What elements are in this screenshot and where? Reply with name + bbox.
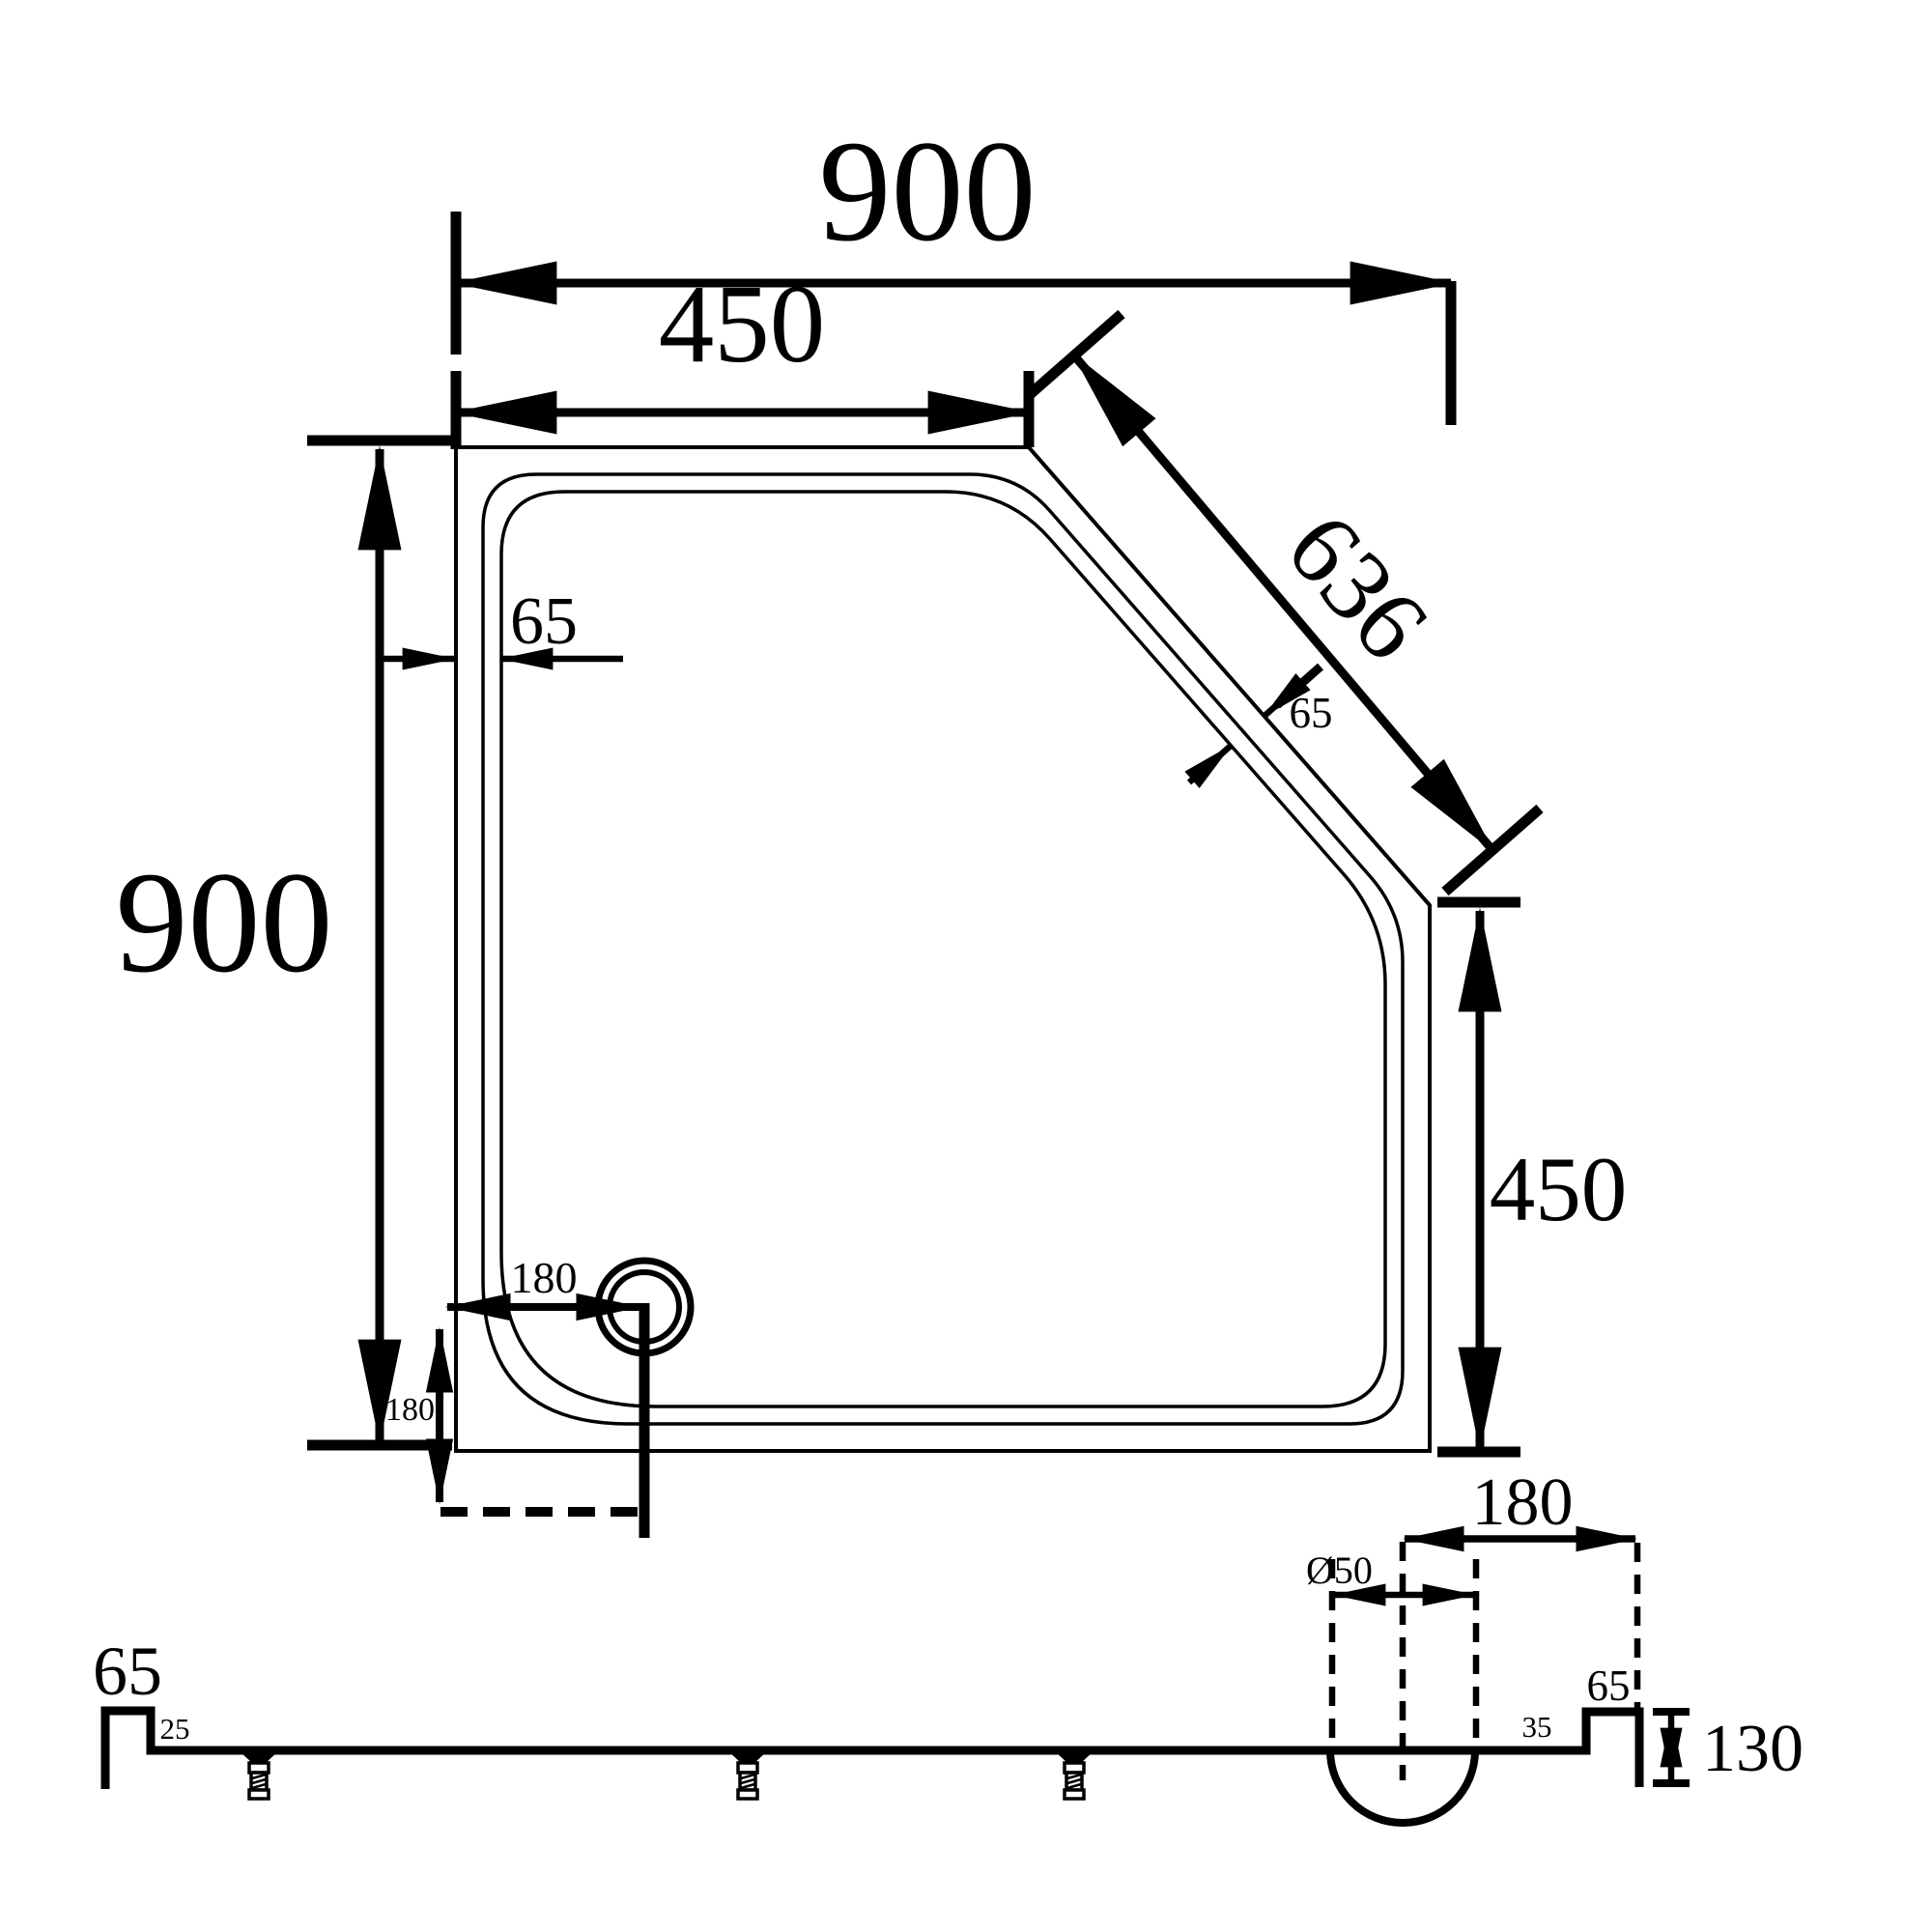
dim-label-left-upstand-width: 65: [93, 1633, 162, 1710]
tray-rim-inner-line-2: [501, 492, 1385, 1406]
adjustable-foot: [240, 1751, 278, 1799]
dim-label-overall-height: 130: [1702, 1712, 1804, 1786]
adjustable-foot: [728, 1751, 767, 1799]
dim-label-rim-width: 65: [510, 584, 578, 659]
dim-label-drain-offset-horizontal: 180: [511, 1253, 578, 1302]
dim-waste-to-edge: 180: [1405, 1465, 1635, 1540]
arrow-leader: [1189, 746, 1231, 782]
dim-label-top-edge-half: 450: [659, 263, 826, 385]
plan-view: 900 450 636 900 450: [116, 111, 1628, 1538]
dim-drain-offsets: 180 180: [385, 1253, 645, 1538]
dim-label-drain-offset-vertical: 180: [385, 1392, 435, 1428]
waste-trap-semicircle: [1330, 1750, 1475, 1823]
dim-waste-diameter: Ø50: [1306, 1548, 1474, 1595]
dim-label-overall-depth: 900: [116, 842, 333, 1003]
adjustable-foot: [1055, 1751, 1094, 1799]
dim-label-left-upstand-height: 25: [160, 1712, 190, 1746]
dim-label-waste-to-edge: 180: [1472, 1465, 1574, 1540]
dim-top-edge-half: 450: [456, 263, 1029, 449]
dim-label-rim-width-diagonal: 65: [1290, 689, 1333, 737]
dim-label-ledge-width: 35: [1522, 1710, 1552, 1744]
section-view: Ø50 180 130 65 25 65 35: [93, 1465, 1804, 1823]
dim-right-edge-half: 450: [1437, 902, 1627, 1452]
section-profile-outline: [105, 1711, 1639, 1789]
dim-overall-depth: 900: [116, 440, 453, 1445]
dim-label-right-edge-half: 450: [1490, 1138, 1628, 1240]
drawing-sheet: 900 450 636 900 450: [0, 0, 1932, 1932]
dim-label-right-upstand-width: 65: [1587, 1662, 1631, 1710]
dim-label-diagonal-edge: 636: [1265, 492, 1451, 681]
shower-tray-technical-drawing: 900 450 636 900 450: [0, 0, 1932, 1932]
dim-overall-height: 130: [1653, 1712, 1804, 1786]
dim-label-waste-diameter: Ø50: [1306, 1548, 1373, 1592]
dim-overall-width: 900: [456, 111, 1451, 425]
dim-label-overall-width: 900: [819, 111, 1037, 271]
